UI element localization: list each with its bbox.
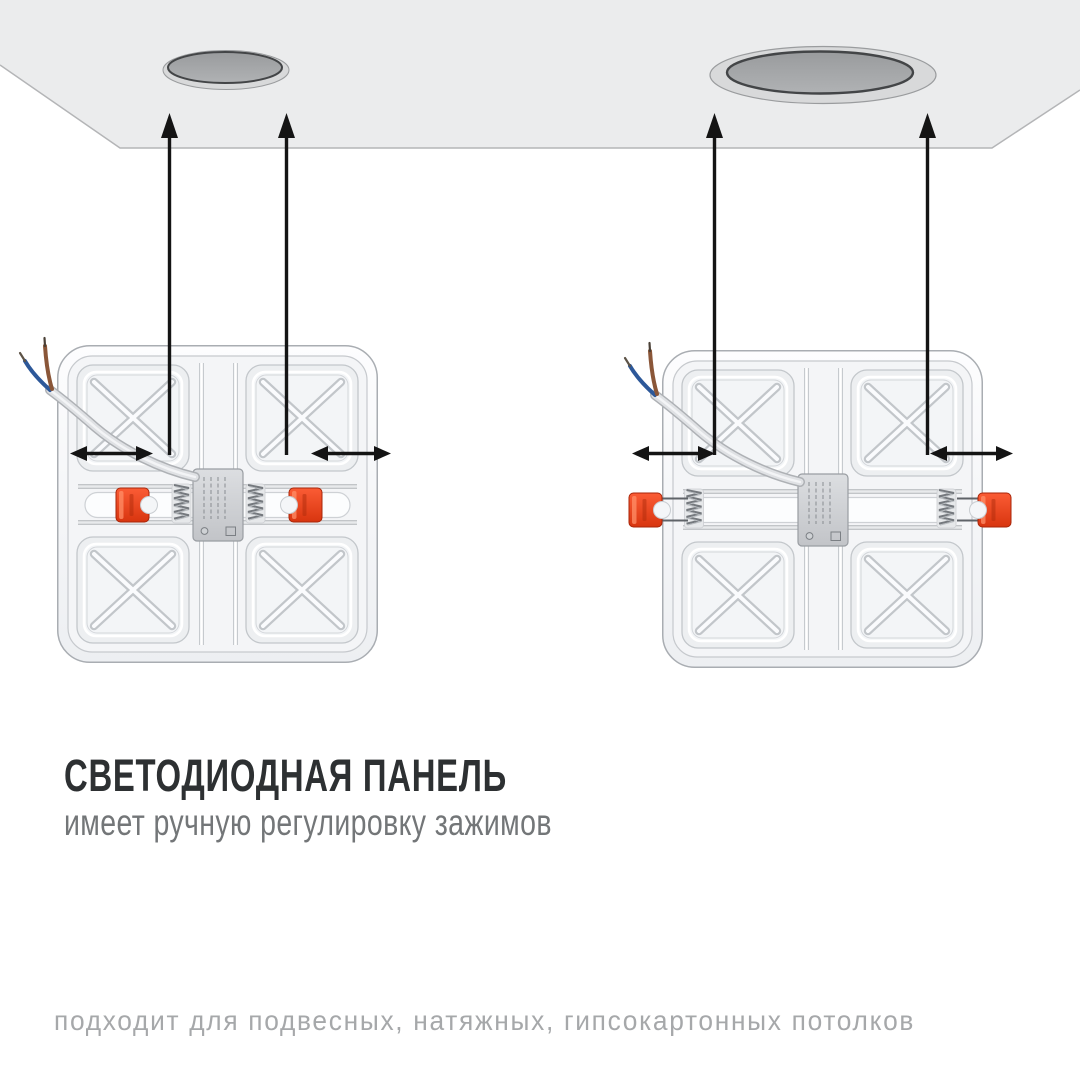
led-panel-right [625, 343, 1011, 667]
ceiling-hole-left [163, 51, 289, 90]
ceiling-hole-right [710, 47, 936, 104]
page-subtitle: имеет ручную регулировку зажимов [64, 803, 552, 844]
footer-note: подходит для подвесных, натяжных, гипсок… [54, 1006, 915, 1037]
scene-graphic [0, 0, 1080, 1080]
page-title: СВЕТОДИОДНАЯ ПАНЕЛЬ [64, 752, 507, 799]
ceiling [0, 0, 1080, 148]
led-panel-left [20, 338, 377, 662]
